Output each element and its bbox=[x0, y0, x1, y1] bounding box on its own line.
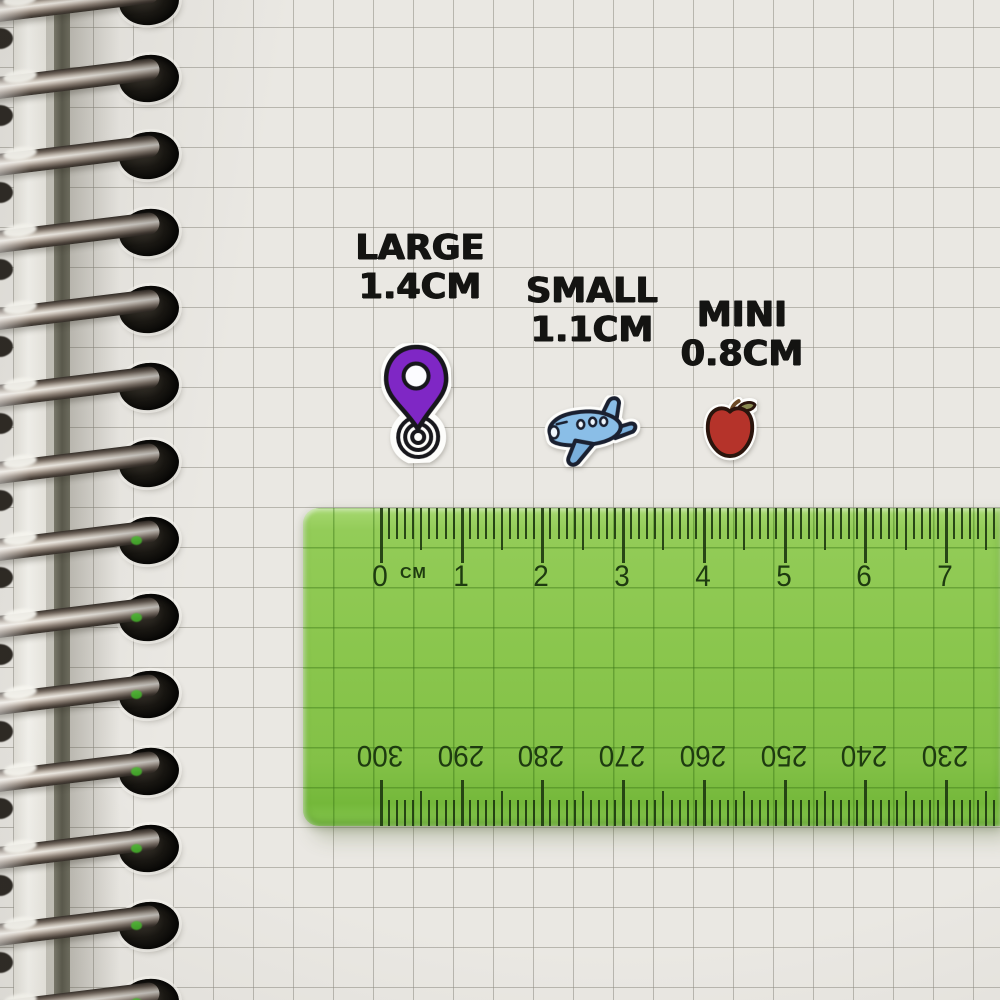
ruler-tick bbox=[896, 800, 898, 826]
ruler-tick bbox=[832, 800, 834, 826]
sticker-apple bbox=[703, 397, 757, 463]
ruler-tick bbox=[396, 800, 398, 826]
ruler-tick bbox=[711, 800, 713, 826]
ruler-mm-number: 300 bbox=[357, 738, 404, 772]
size-label-title: MINI bbox=[662, 296, 822, 335]
ruler-tick bbox=[864, 780, 867, 826]
ring-green-reflection bbox=[131, 844, 142, 853]
ruler-tick bbox=[751, 800, 753, 826]
ruler-tick bbox=[921, 800, 923, 826]
coil-shadow bbox=[0, 952, 13, 973]
spiral-binding bbox=[0, 0, 200, 1000]
ruler-tick bbox=[880, 800, 882, 826]
coil-shadow bbox=[0, 336, 13, 357]
ruler-tick bbox=[767, 800, 769, 826]
coil-shadow bbox=[0, 490, 13, 511]
coil-shadow bbox=[0, 721, 13, 742]
ruler-tick bbox=[945, 780, 948, 826]
airplane-icon bbox=[540, 394, 644, 468]
ruler-tick bbox=[501, 791, 503, 826]
coil-shadow bbox=[0, 644, 13, 665]
ruler-tick bbox=[695, 800, 697, 826]
ruler-tick bbox=[558, 800, 560, 826]
ruler-tick bbox=[453, 800, 455, 826]
ring-green-reflection bbox=[131, 767, 142, 776]
ruler-tick bbox=[816, 800, 818, 826]
ruler-tick bbox=[630, 800, 632, 826]
ruler-tick bbox=[961, 800, 963, 826]
ruler-tick bbox=[848, 800, 850, 826]
ruler-tick bbox=[469, 800, 471, 826]
ruler-tick bbox=[477, 800, 479, 826]
ruler-tick bbox=[856, 800, 858, 826]
ruler-tick bbox=[662, 791, 664, 826]
ruler-tick bbox=[929, 800, 931, 826]
ring-green-reflection bbox=[131, 921, 142, 930]
ruler-tick bbox=[590, 800, 592, 826]
coil-shadow bbox=[0, 28, 13, 49]
ruler-mm-number: 280 bbox=[518, 738, 565, 772]
coil-shadow bbox=[0, 105, 13, 126]
ruler: CM 01234567 300290280270260250240230 bbox=[303, 508, 1000, 826]
location-pin-icon bbox=[380, 342, 454, 464]
sticker-location-pin bbox=[380, 342, 454, 464]
ruler-tick bbox=[582, 791, 584, 826]
ring-green-reflection bbox=[131, 613, 142, 622]
sticker-airplane bbox=[540, 394, 644, 468]
ruler-tick bbox=[727, 800, 729, 826]
ruler-tick bbox=[638, 800, 640, 826]
ruler-tick bbox=[380, 780, 383, 826]
ruler-tick bbox=[784, 780, 787, 826]
size-label-title: SMALL bbox=[512, 272, 672, 311]
ruler-tick bbox=[905, 791, 907, 826]
ruler-tick bbox=[566, 800, 568, 826]
ruler-mm-number: 250 bbox=[760, 738, 807, 772]
coil-shadow bbox=[0, 875, 13, 896]
ruler-mm-number: 270 bbox=[599, 738, 646, 772]
ruler-tick bbox=[824, 791, 826, 826]
size-label-value: 0.8CM bbox=[662, 335, 822, 374]
ruler-tick bbox=[969, 800, 971, 826]
ruler-tick bbox=[598, 800, 600, 826]
ruler-tick bbox=[888, 800, 890, 826]
ruler-mm-number: 290 bbox=[437, 738, 484, 772]
ruler-tick bbox=[840, 800, 842, 826]
ruler-tick bbox=[800, 800, 802, 826]
ruler-tick bbox=[671, 800, 673, 826]
size-label-large: LARGE 1.4CM bbox=[340, 229, 500, 307]
coil-shadow bbox=[0, 567, 13, 588]
ruler-tick bbox=[937, 800, 939, 826]
ruler-tick bbox=[622, 780, 625, 826]
ring-green-reflection bbox=[131, 690, 142, 699]
size-label-value: 1.4CM bbox=[340, 268, 500, 307]
ruler-tick bbox=[493, 800, 495, 826]
ruler-tick bbox=[606, 800, 608, 826]
ruler-tick bbox=[953, 800, 955, 826]
ruler-tick bbox=[445, 800, 447, 826]
coil-shadow bbox=[0, 259, 13, 280]
apple-icon bbox=[703, 397, 757, 463]
ruler-mm-number: 260 bbox=[680, 738, 727, 772]
coil-shadow bbox=[0, 182, 13, 203]
ruler-tick bbox=[509, 800, 511, 826]
ruler-tick bbox=[485, 800, 487, 826]
ruler-tick bbox=[461, 780, 464, 826]
ruler-tick bbox=[436, 800, 438, 826]
ruler-tick bbox=[872, 800, 874, 826]
ruler-tick bbox=[985, 791, 987, 826]
ruler-tick bbox=[993, 800, 995, 826]
ruler-tick bbox=[792, 800, 794, 826]
size-label-value: 1.1CM bbox=[512, 311, 672, 350]
ruler-tick bbox=[687, 800, 689, 826]
ruler-tick bbox=[541, 780, 544, 826]
ruler-tick bbox=[646, 800, 648, 826]
ruler-tick bbox=[977, 800, 979, 826]
ruler-tick bbox=[614, 800, 616, 826]
size-label-mini: MINI 0.8CM bbox=[662, 296, 822, 374]
ruler-tick bbox=[735, 800, 737, 826]
ruler-tick bbox=[388, 800, 390, 826]
ruler-tick bbox=[743, 791, 745, 826]
ruler-mm-number: 230 bbox=[922, 738, 969, 772]
ruler-tick bbox=[525, 800, 527, 826]
ruler-tick bbox=[719, 800, 721, 826]
ruler-bottom-scale: 300290280270260250240230 bbox=[303, 508, 1000, 826]
ruler-tick bbox=[517, 800, 519, 826]
coil-shadow bbox=[0, 413, 13, 434]
ruler-tick bbox=[679, 800, 681, 826]
ruler-tick bbox=[913, 800, 915, 826]
ring-green-reflection bbox=[131, 536, 142, 545]
ruler-tick bbox=[759, 800, 761, 826]
ruler-tick bbox=[808, 800, 810, 826]
ruler-tick bbox=[775, 800, 777, 826]
ring-highlight bbox=[2, 992, 37, 1000]
ruler-tick bbox=[549, 800, 551, 826]
size-label-title: LARGE bbox=[340, 229, 500, 268]
coil-shadow bbox=[0, 798, 13, 819]
ruler-tick bbox=[412, 800, 414, 826]
ruler-tick bbox=[428, 800, 430, 826]
ruler-tick bbox=[703, 780, 706, 826]
ruler-tick bbox=[654, 800, 656, 826]
ruler-tick bbox=[533, 800, 535, 826]
ruler-tick bbox=[420, 791, 422, 826]
ruler-mm-number: 240 bbox=[841, 738, 888, 772]
ruler-tick bbox=[574, 800, 576, 826]
size-label-small: SMALL 1.1CM bbox=[512, 272, 672, 350]
notebook-photo: LARGE 1.4CM SMALL 1.1CM MINI 0.8CM bbox=[0, 0, 1000, 1000]
ruler-tick bbox=[404, 800, 406, 826]
